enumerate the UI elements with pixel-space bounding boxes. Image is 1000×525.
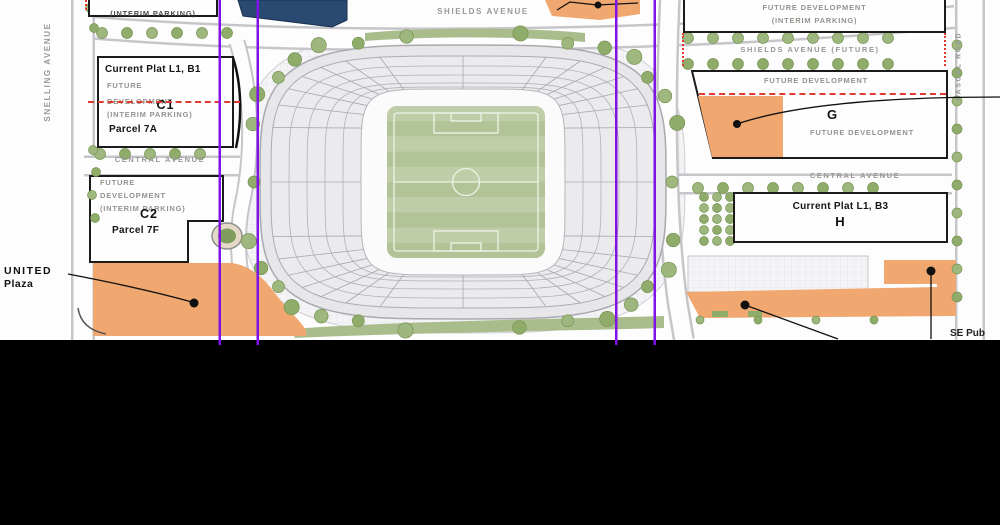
paved-plaza-grid bbox=[688, 256, 868, 292]
h-title: Current Plat L1, B3 bbox=[735, 201, 946, 212]
g-code: G bbox=[827, 108, 838, 121]
planter-circle bbox=[212, 223, 242, 249]
street-pascal: PASCAL ROAD bbox=[956, 32, 963, 100]
parcel-box-top-right: FUTURE DEVELOPMENT (INTERIM PARKING) bbox=[683, 0, 946, 33]
letterbox-bar bbox=[0, 340, 1000, 525]
red-boundary-shields-right bbox=[944, 33, 946, 66]
c1-line1: FUTURE bbox=[107, 82, 142, 90]
c2-line2: DEVELOPMENT bbox=[100, 192, 166, 200]
parcel-box-top-left: (INTERIM PARKING) bbox=[88, 0, 218, 17]
red-boundary-c1 bbox=[88, 101, 240, 103]
h-code: H bbox=[735, 214, 946, 229]
street-snelling: SNELLING AVENUE bbox=[44, 22, 52, 121]
stadium-site-plan: (INTERIM PARKING) Current Plat L1, B1 FU… bbox=[0, 0, 1000, 525]
red-boundary-shields-left bbox=[682, 33, 684, 66]
c1-parcel: Parcel 7A bbox=[109, 125, 157, 135]
street-central-left: CENTRAL AVENUE bbox=[115, 156, 206, 164]
c1-line3: (INTERIM PARKING) bbox=[107, 111, 193, 119]
g-sub-label: FUTURE DEVELOPMENT bbox=[810, 129, 914, 137]
c2-line1: FUTURE bbox=[100, 179, 135, 187]
red-boundary-top-left bbox=[85, 0, 87, 10]
c2-parcel: Parcel 7F bbox=[112, 226, 159, 236]
red-boundary-g bbox=[699, 93, 946, 95]
parcel-label: (INTERIM PARKING) bbox=[110, 9, 196, 18]
tr-line2: (INTERIM PARKING) bbox=[685, 16, 944, 25]
parcel-box-h: Current Plat L1, B3 H bbox=[733, 192, 948, 243]
tr-line1: FUTURE DEVELOPMENT bbox=[685, 3, 944, 12]
street-shields-future: SHIELDS AVENUE (FUTURE) bbox=[740, 46, 879, 54]
east-plaza-upper bbox=[884, 260, 956, 290]
blue-building bbox=[238, 0, 347, 27]
united-plaza-label-line2: Plaza bbox=[4, 279, 33, 290]
c2-code: C2 bbox=[140, 208, 158, 221]
se-public-label: SE Pub bbox=[950, 329, 985, 339]
g-top-label: FUTURE DEVELOPMENT bbox=[764, 77, 868, 85]
soccer-pitch bbox=[387, 106, 545, 258]
c1-title: Current Plat L1, B1 bbox=[105, 65, 201, 75]
street-central-right: CENTRAL AVENUE bbox=[810, 172, 901, 180]
united-plaza-label-line1: UNITED bbox=[4, 266, 52, 277]
hedge bbox=[712, 311, 728, 317]
street-shields: SHIELDS AVENUE bbox=[437, 8, 529, 16]
g-parcel-plaza bbox=[698, 96, 783, 157]
